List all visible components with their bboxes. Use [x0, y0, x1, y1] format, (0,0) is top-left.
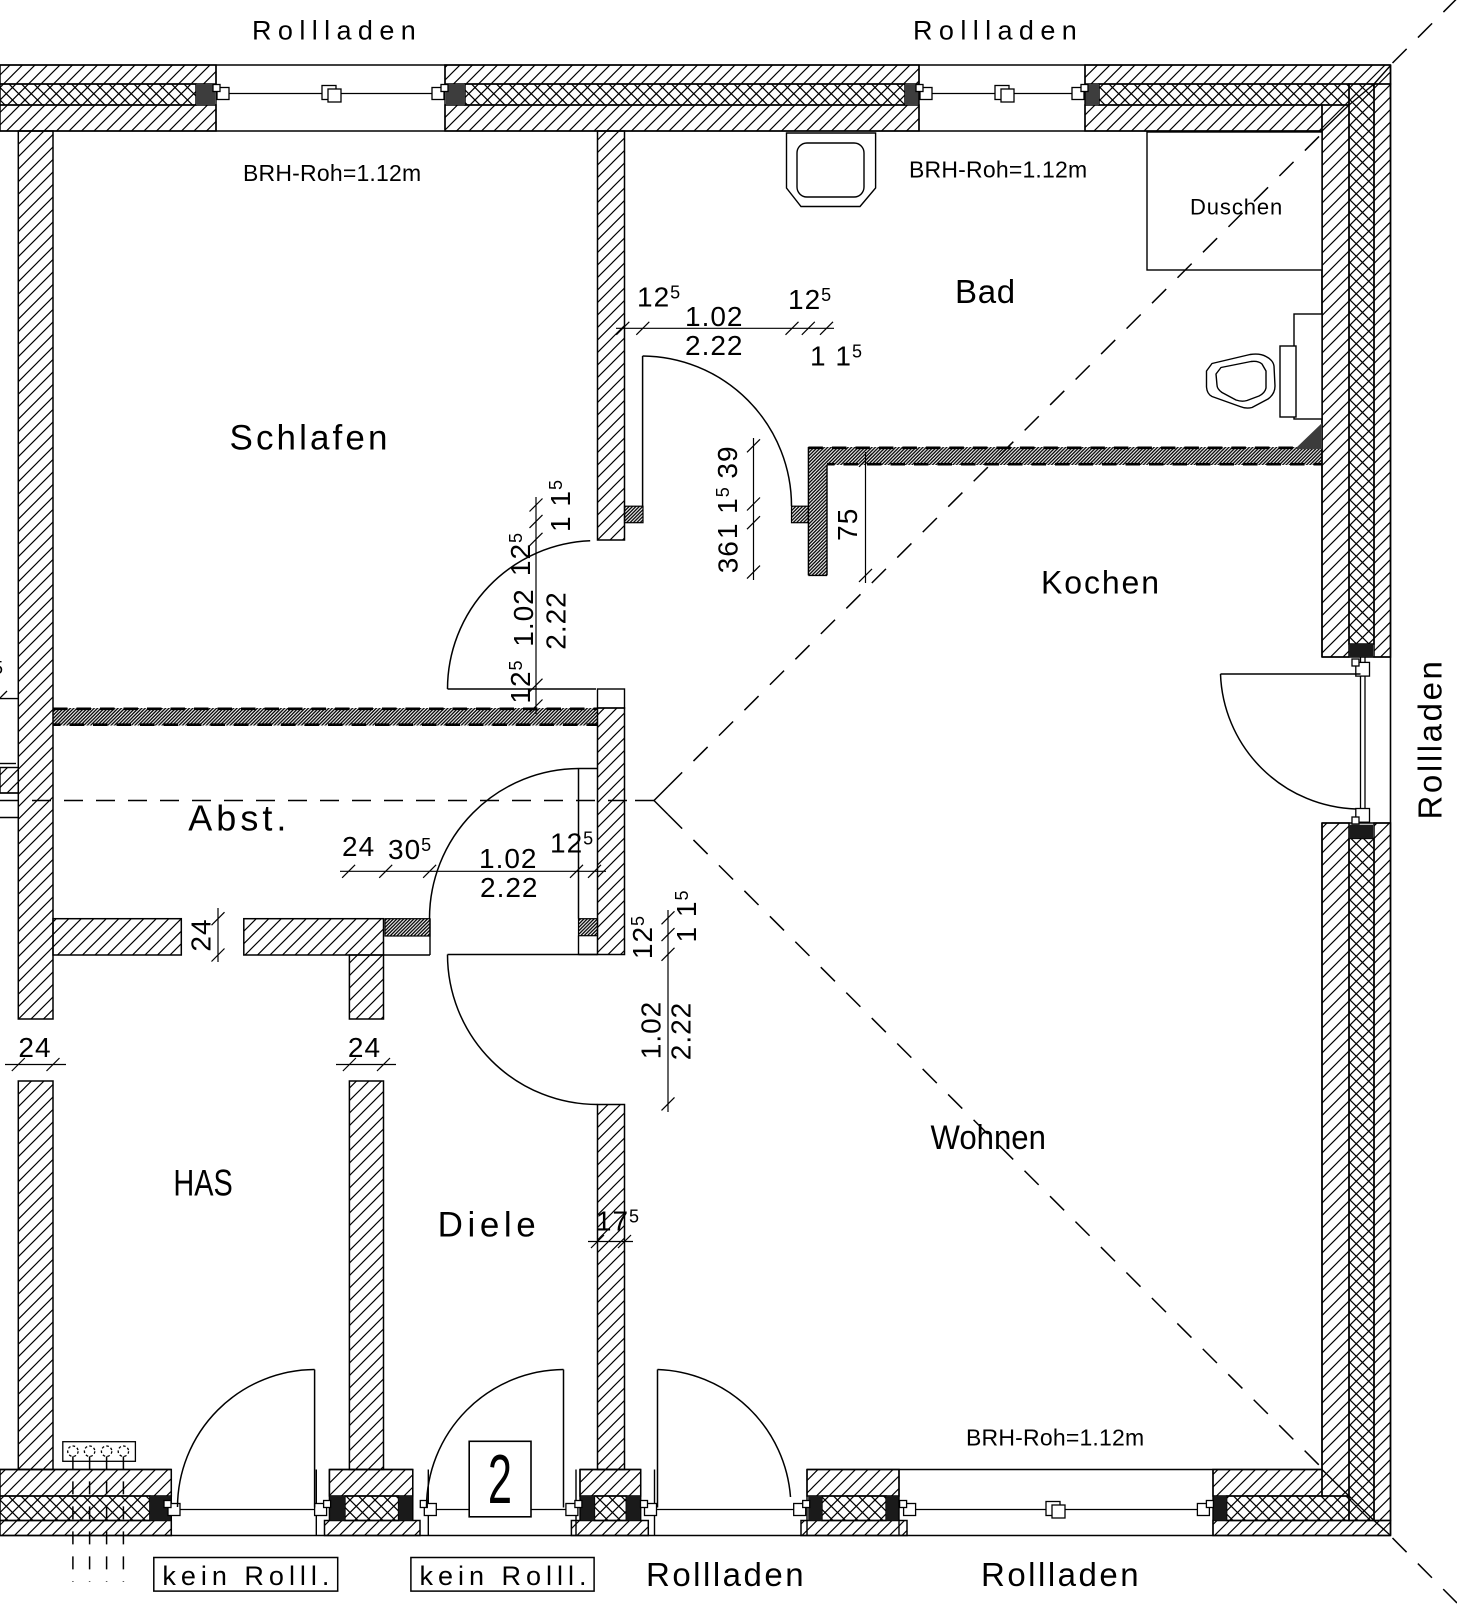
- svg-text:39: 39: [712, 445, 743, 478]
- svg-text:2.22: 2.22: [666, 1002, 697, 1061]
- svg-text:24: 24: [348, 1032, 381, 1063]
- svg-text:Rollladen: Rollladen: [646, 1556, 806, 1593]
- svg-text:1.02: 1.02: [508, 588, 539, 647]
- svg-text:2.22: 2.22: [480, 872, 539, 903]
- svg-text:BRH-Roh=1.12m: BRH-Roh=1.12m: [243, 160, 421, 186]
- svg-text:Rollladen: Rollladen: [1412, 659, 1449, 820]
- svg-text:2: 2: [488, 1440, 512, 1518]
- svg-text:Kochen: Kochen: [1041, 564, 1161, 600]
- svg-text:BRH-Roh=1.12m: BRH-Roh=1.12m: [966, 1425, 1144, 1451]
- svg-text:24: 24: [18, 1032, 51, 1063]
- svg-text:Rollladen: Rollladen: [252, 16, 422, 46]
- svg-text:24: 24: [186, 918, 217, 951]
- svg-text:24: 24: [342, 831, 375, 862]
- svg-text:Bad: Bad: [955, 273, 1016, 310]
- svg-text:Wohnen: Wohnen: [931, 1118, 1046, 1157]
- svg-text:kein Rolll.: kein Rolll.: [162, 1561, 334, 1591]
- svg-text:Schlafen: Schlafen: [230, 418, 391, 457]
- svg-text:Rollladen: Rollladen: [913, 16, 1083, 46]
- svg-text:Rollladen: Rollladen: [981, 1556, 1141, 1593]
- svg-text:1.02: 1.02: [479, 843, 538, 874]
- svg-text:2.22: 2.22: [685, 330, 744, 361]
- svg-text:kein Rolll.: kein Rolll.: [420, 1561, 592, 1591]
- svg-text:36: 36: [713, 540, 744, 573]
- svg-text:75: 75: [832, 508, 863, 541]
- svg-text:5: 5: [0, 658, 4, 678]
- svg-text:2.22: 2.22: [541, 591, 572, 650]
- svg-text:HAS: HAS: [173, 1163, 232, 1204]
- svg-text:1.02: 1.02: [636, 1001, 667, 1060]
- svg-text:BRH-Roh=1.12m: BRH-Roh=1.12m: [909, 157, 1087, 183]
- svg-text:1.02: 1.02: [685, 301, 744, 332]
- svg-text:Abst.: Abst.: [188, 798, 290, 839]
- svg-text:Duschen: Duschen: [1190, 195, 1283, 220]
- svg-text:Diele: Diele: [438, 1205, 541, 1244]
